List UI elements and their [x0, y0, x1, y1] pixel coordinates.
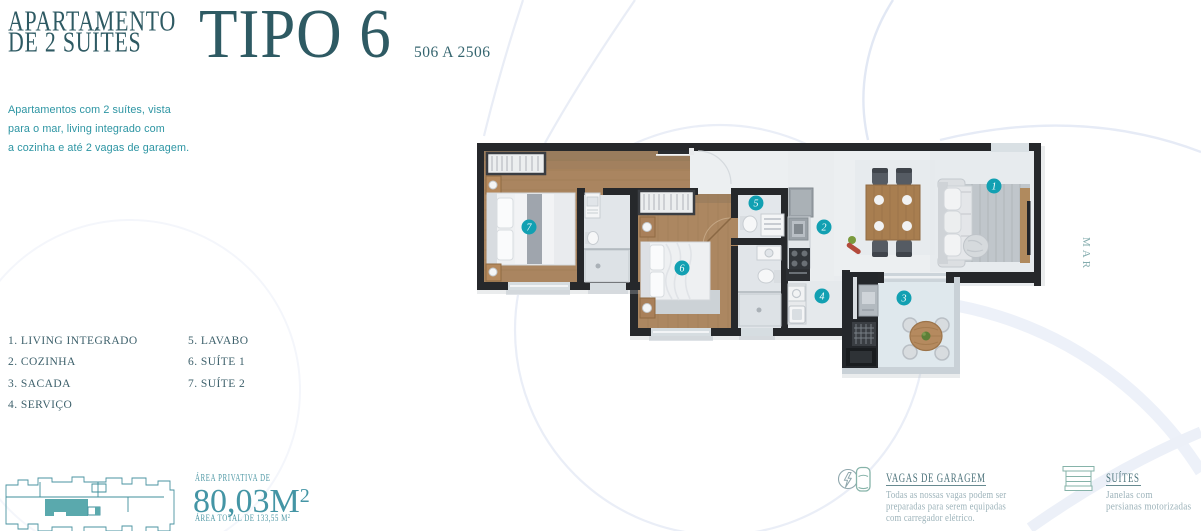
- svg-text:Apartamentos com 2 suítes, vis: Apartamentos com 2 suítes, vista: [8, 104, 171, 116]
- svg-text:4. SERVIÇO: 4. SERVIÇO: [8, 399, 72, 411]
- svg-text:SUÍTES: SUÍTES: [1106, 472, 1139, 486]
- svg-text:ÁREA PRIVATIVA DE: ÁREA PRIVATIVA DE: [195, 472, 271, 484]
- svg-text:Janelas com: Janelas com: [1106, 490, 1153, 501]
- svg-text:1: 1: [992, 182, 997, 193]
- svg-text:3. SACADA: 3. SACADA: [8, 378, 71, 390]
- svg-text:a cozinha e até 2 vagas de gar: a cozinha e até 2 vagas de garagem.: [8, 142, 189, 154]
- svg-text:2. COZINHA: 2. COZINHA: [8, 356, 76, 368]
- svg-text:ÁREA TOTAL DE 133,55 M2: ÁREA TOTAL DE 133,55 M2: [195, 512, 291, 523]
- svg-text:MAR: MAR: [1080, 237, 1092, 271]
- svg-text:6. SUÍTE 1: 6. SUÍTE 1: [188, 354, 245, 368]
- svg-text:VAGAS DE GARAGEM: VAGAS DE GARAGEM: [886, 472, 986, 486]
- svg-text:506 A 2506: 506 A 2506: [414, 44, 490, 61]
- svg-text:4: 4: [820, 292, 825, 303]
- svg-text:5: 5: [754, 199, 759, 210]
- svg-text:DE 2 SUÍTES: DE 2 SUÍTES: [8, 27, 141, 58]
- svg-text:persianas motorizadas: persianas motorizadas: [1106, 501, 1191, 512]
- svg-text:6: 6: [680, 264, 685, 275]
- svg-text:para o mar, living integrado c: para o mar, living integrado com: [8, 123, 165, 135]
- svg-text:TIPO 6: TIPO 6: [199, 0, 392, 73]
- svg-text:preparadas para serem equipada: preparadas para serem equipadas: [886, 502, 1006, 513]
- svg-text:Todas as nossas vagas podem se: Todas as nossas vagas podem ser: [886, 491, 1007, 502]
- svg-text:5. LAVABO: 5. LAVABO: [188, 335, 249, 347]
- svg-text:1. LIVING INTEGRADO: 1. LIVING INTEGRADO: [8, 335, 138, 347]
- svg-text:com carregador elétrico.: com carregador elétrico.: [886, 514, 975, 525]
- svg-text:2: 2: [822, 223, 827, 234]
- svg-text:7. SUÍTE 2: 7. SUÍTE 2: [188, 376, 245, 390]
- svg-text:3: 3: [901, 294, 907, 305]
